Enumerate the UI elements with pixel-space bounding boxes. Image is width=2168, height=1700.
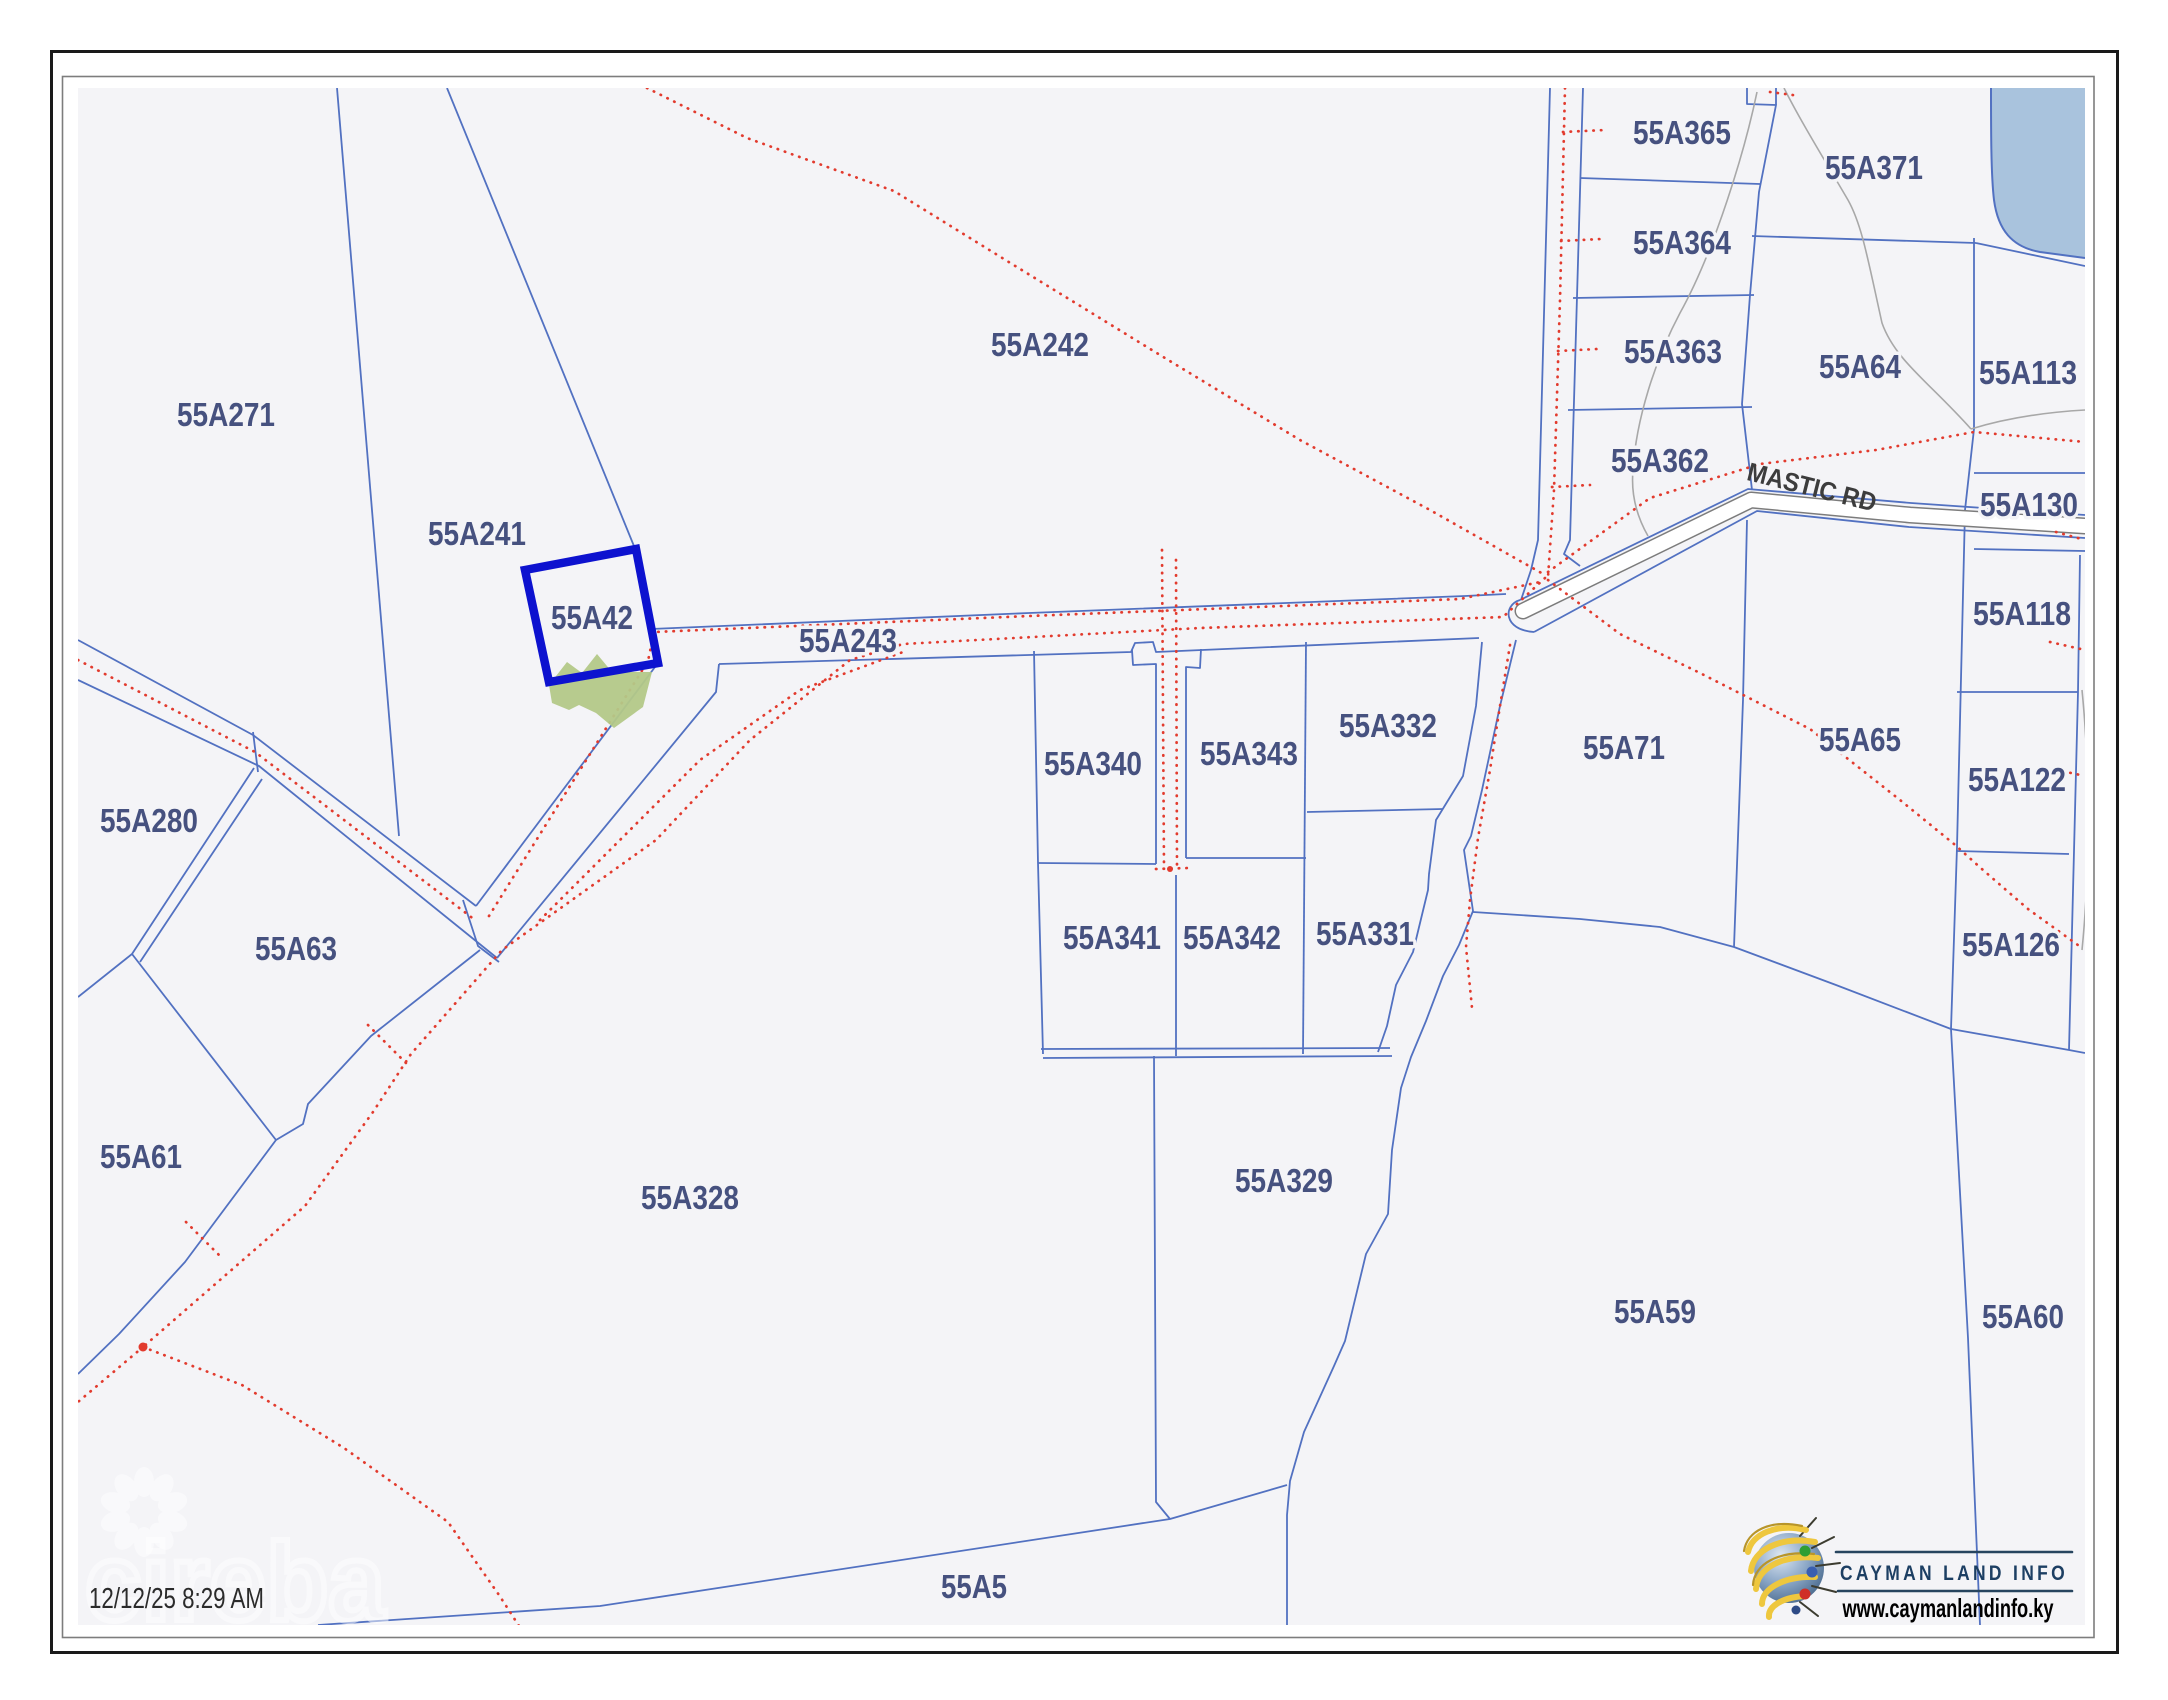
svg-text:55A126: 55A126 — [1962, 926, 2060, 963]
svg-text:55A280: 55A280 — [100, 802, 198, 839]
svg-text:55A71: 55A71 — [1583, 729, 1665, 766]
svg-text:55A60: 55A60 — [1982, 1298, 2064, 1335]
svg-text:55A130: 55A130 — [1980, 486, 2078, 523]
svg-text:55A243: 55A243 — [799, 622, 897, 659]
svg-text:55A59: 55A59 — [1614, 1293, 1696, 1330]
svg-text:55A61: 55A61 — [100, 1138, 182, 1175]
svg-text:55A329: 55A329 — [1235, 1162, 1333, 1199]
svg-text:55A42: 55A42 — [551, 599, 633, 636]
svg-text:55A362: 55A362 — [1611, 442, 1709, 479]
svg-text:www.caymanlandinfo.ky: www.caymanlandinfo.ky — [1842, 1593, 2054, 1623]
svg-text:55A363: 55A363 — [1624, 333, 1722, 370]
svg-text:55A65: 55A65 — [1819, 721, 1901, 758]
svg-text:55A364: 55A364 — [1633, 224, 1732, 261]
svg-text:55A242: 55A242 — [991, 326, 1089, 363]
svg-text:55A365: 55A365 — [1633, 114, 1731, 151]
svg-text:CAYMAN LAND INFO: CAYMAN LAND INFO — [1840, 1562, 2068, 1585]
svg-text:55A332: 55A332 — [1339, 707, 1437, 744]
svg-text:55A371: 55A371 — [1825, 149, 1923, 186]
svg-text:55A5: 55A5 — [941, 1568, 1007, 1605]
svg-text:55A113: 55A113 — [1979, 354, 2077, 391]
svg-text:55A328: 55A328 — [641, 1179, 739, 1216]
svg-text:55A241: 55A241 — [428, 515, 526, 552]
svg-text:12/12/25 8:29 AM: 12/12/25 8:29 AM — [89, 1583, 264, 1615]
svg-text:55A118: 55A118 — [1973, 595, 2071, 632]
svg-text:55A342: 55A342 — [1183, 919, 1281, 956]
svg-text:55A64: 55A64 — [1819, 348, 1902, 385]
svg-text:55A63: 55A63 — [255, 930, 337, 967]
svg-text:55A122: 55A122 — [1968, 761, 2066, 798]
svg-text:55A331: 55A331 — [1316, 915, 1414, 952]
svg-text:55A343: 55A343 — [1200, 735, 1298, 772]
svg-text:55A271: 55A271 — [177, 396, 275, 433]
svg-text:55A340: 55A340 — [1044, 745, 1142, 782]
svg-text:55A341: 55A341 — [1063, 919, 1161, 956]
